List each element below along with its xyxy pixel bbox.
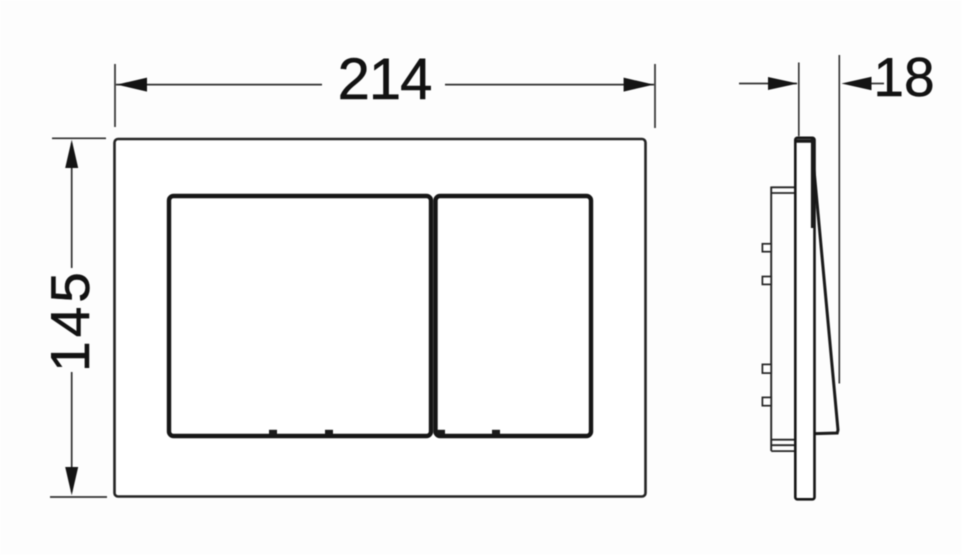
svg-text:18: 18: [873, 46, 934, 108]
svg-text:145: 145: [39, 268, 101, 372]
svg-text:214: 214: [338, 47, 432, 112]
